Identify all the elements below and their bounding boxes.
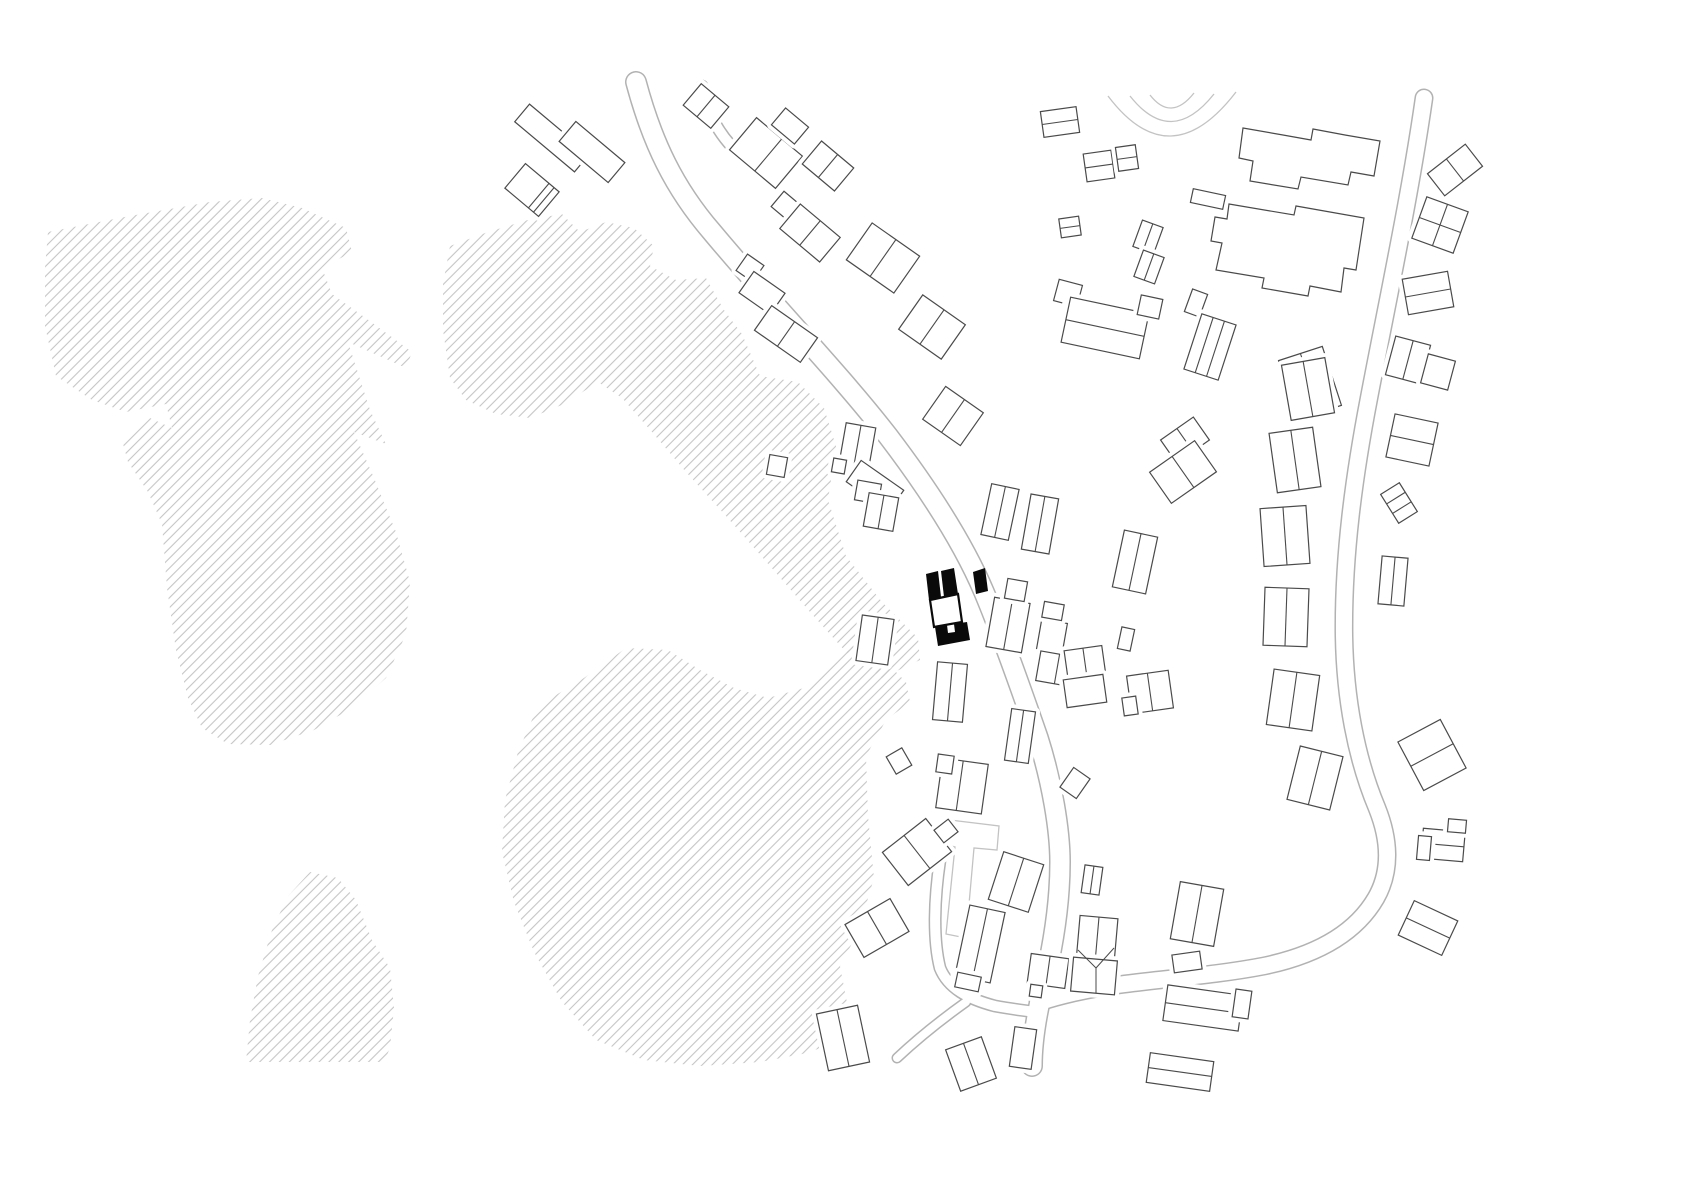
building-footprint <box>1122 696 1138 716</box>
building <box>1117 627 1134 651</box>
building-footprint <box>1071 957 1118 995</box>
building <box>1170 882 1223 947</box>
building <box>1232 989 1252 1019</box>
building <box>936 754 954 774</box>
site-court <box>930 594 962 627</box>
building-footprint <box>1029 984 1043 998</box>
building-footprint <box>1172 951 1202 973</box>
building-footprint <box>1063 674 1107 707</box>
building <box>955 972 982 992</box>
building <box>816 1005 869 1070</box>
building <box>1071 957 1118 995</box>
building-footprint <box>1004 578 1027 601</box>
building <box>933 662 968 722</box>
building-footprint <box>1447 819 1466 834</box>
building-footprint <box>936 754 954 774</box>
building-footprint <box>1232 989 1252 1019</box>
building <box>1378 556 1408 606</box>
building <box>766 455 787 478</box>
building <box>1412 197 1468 253</box>
building <box>1059 216 1081 238</box>
site-plan <box>0 0 1698 1200</box>
building-footprint <box>831 458 846 474</box>
building <box>1260 505 1310 566</box>
building <box>1009 1027 1036 1070</box>
building <box>1083 150 1115 182</box>
building <box>1269 427 1321 493</box>
building <box>946 1037 997 1091</box>
building <box>1040 107 1079 138</box>
building <box>1146 1053 1214 1092</box>
building-footprint <box>1416 835 1431 860</box>
building <box>1115 145 1138 172</box>
building <box>1281 358 1334 421</box>
building <box>1416 835 1431 860</box>
building <box>981 484 1019 541</box>
building <box>1266 669 1319 731</box>
building-footprint <box>766 455 787 478</box>
building <box>886 748 912 774</box>
building <box>1421 354 1456 390</box>
building <box>1021 494 1058 554</box>
building <box>831 458 846 474</box>
building <box>988 852 1043 913</box>
building <box>1190 189 1225 210</box>
building <box>1004 578 1027 601</box>
building-footprint <box>1137 295 1163 319</box>
building <box>1081 865 1103 895</box>
building <box>1134 250 1164 284</box>
building <box>1402 271 1454 314</box>
building <box>1122 696 1138 716</box>
site-plan-canvas <box>0 0 1698 1200</box>
building <box>1263 587 1309 647</box>
building <box>1063 674 1107 707</box>
building <box>1112 530 1157 594</box>
building <box>1004 709 1035 764</box>
building <box>1386 414 1438 466</box>
building-footprint <box>1042 601 1064 620</box>
building <box>1137 295 1163 319</box>
building <box>1029 984 1043 998</box>
building <box>1042 601 1064 620</box>
building <box>1172 951 1202 973</box>
building <box>1447 819 1466 834</box>
building <box>934 819 958 843</box>
building <box>1287 746 1343 810</box>
building <box>856 615 894 665</box>
building <box>863 493 898 532</box>
building-footprint <box>1009 1027 1036 1070</box>
